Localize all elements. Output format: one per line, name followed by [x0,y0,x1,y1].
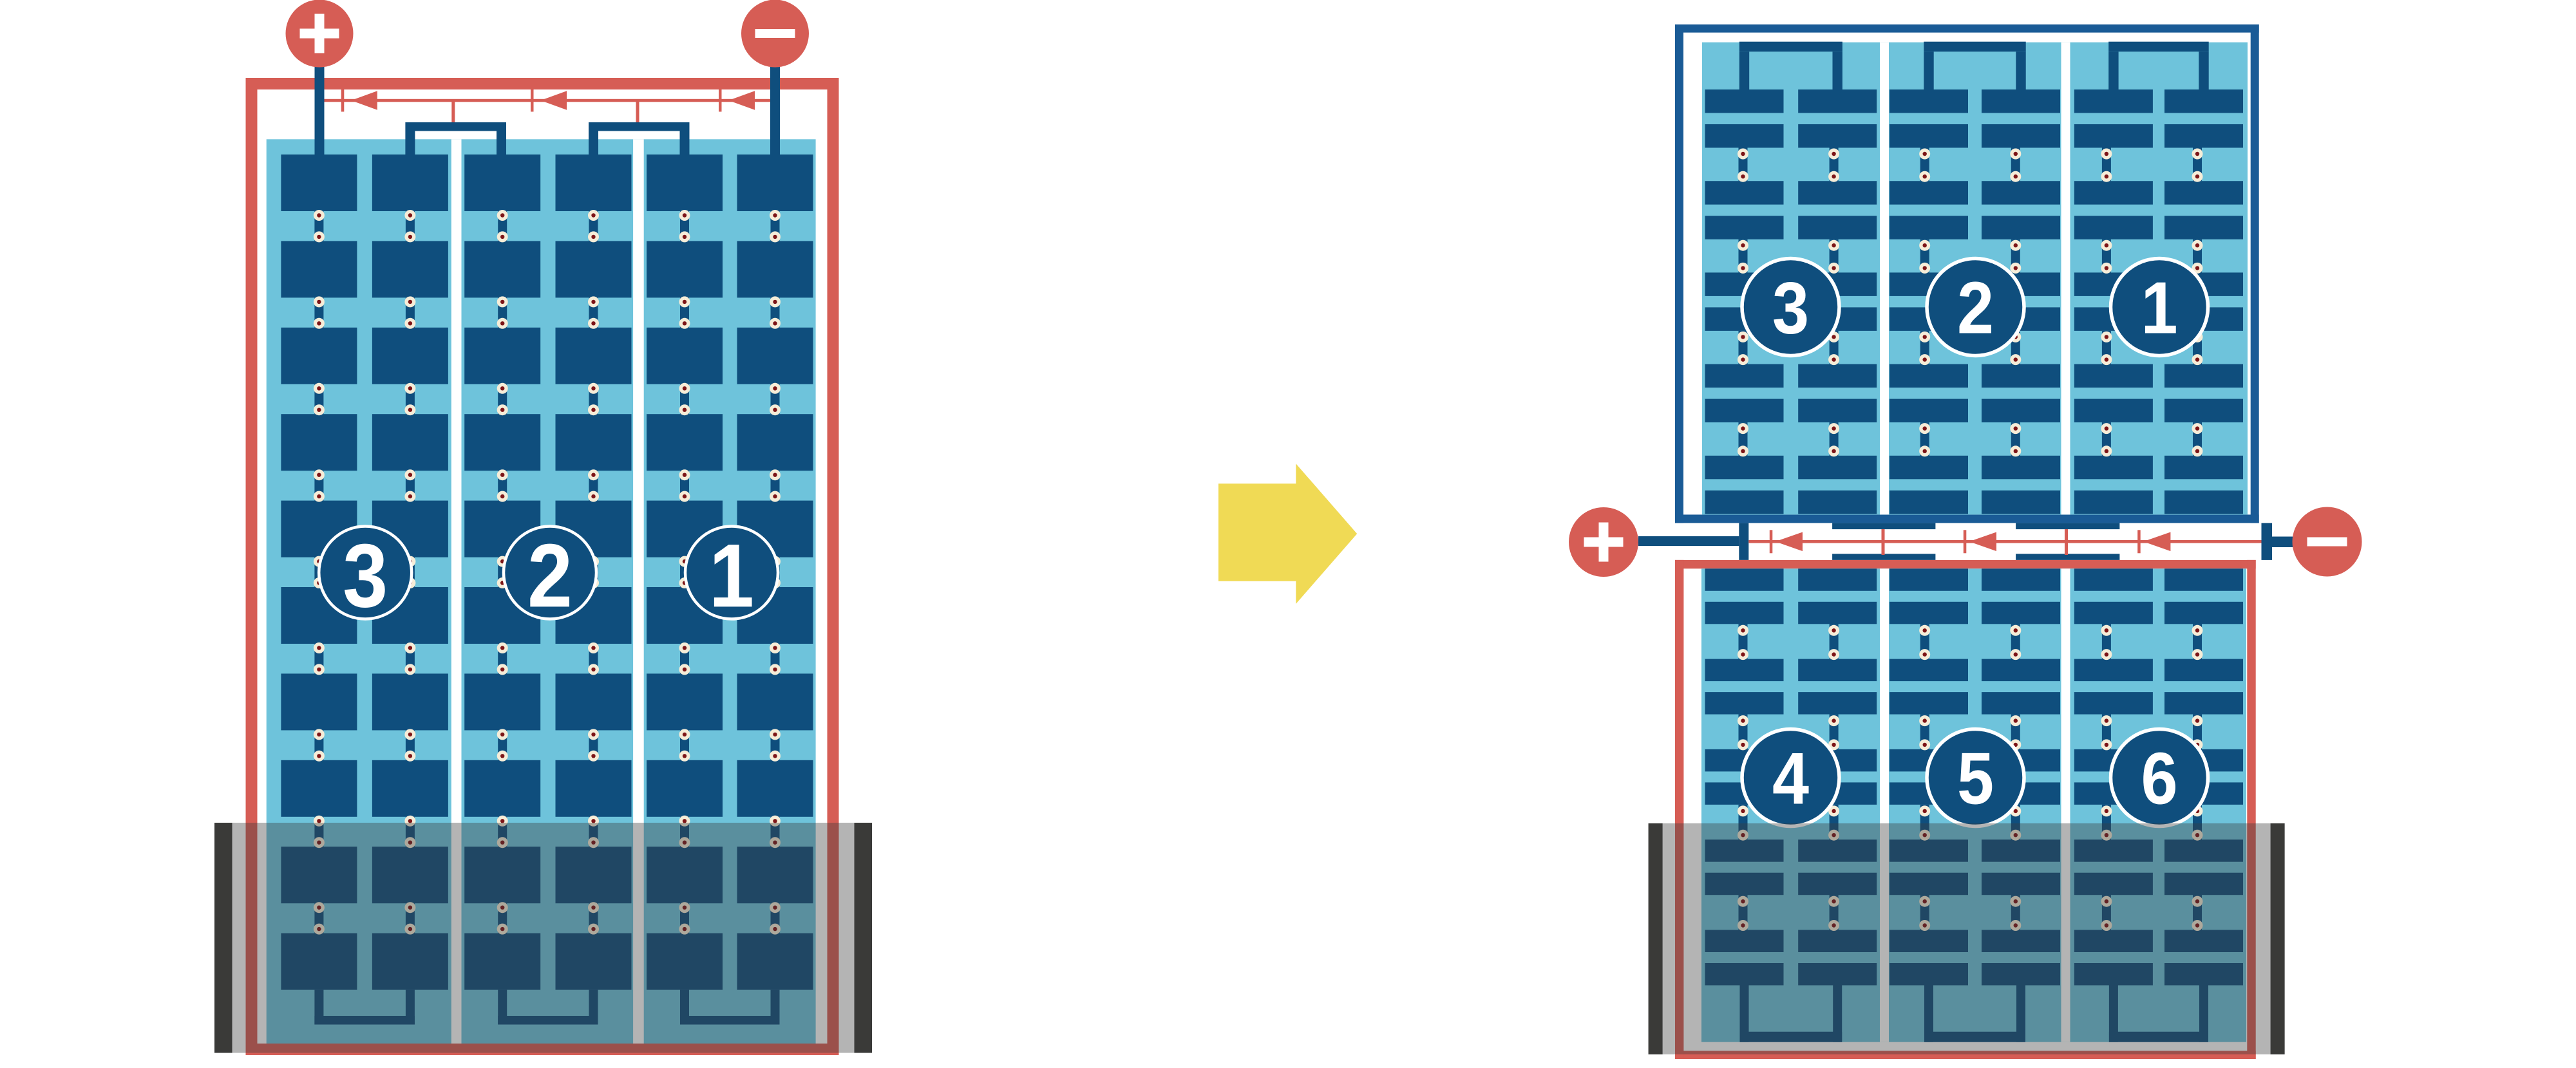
svg-text:3: 3 [1772,267,1809,349]
svg-text:2: 2 [527,525,573,626]
svg-text:2: 2 [1957,267,1994,349]
svg-text:4: 4 [1772,738,1809,820]
svg-text:3: 3 [343,525,388,626]
svg-text:1: 1 [709,525,754,626]
svg-text:6: 6 [2141,738,2177,820]
svg-text:5: 5 [1957,738,1994,820]
svg-text:1: 1 [2141,267,2177,349]
